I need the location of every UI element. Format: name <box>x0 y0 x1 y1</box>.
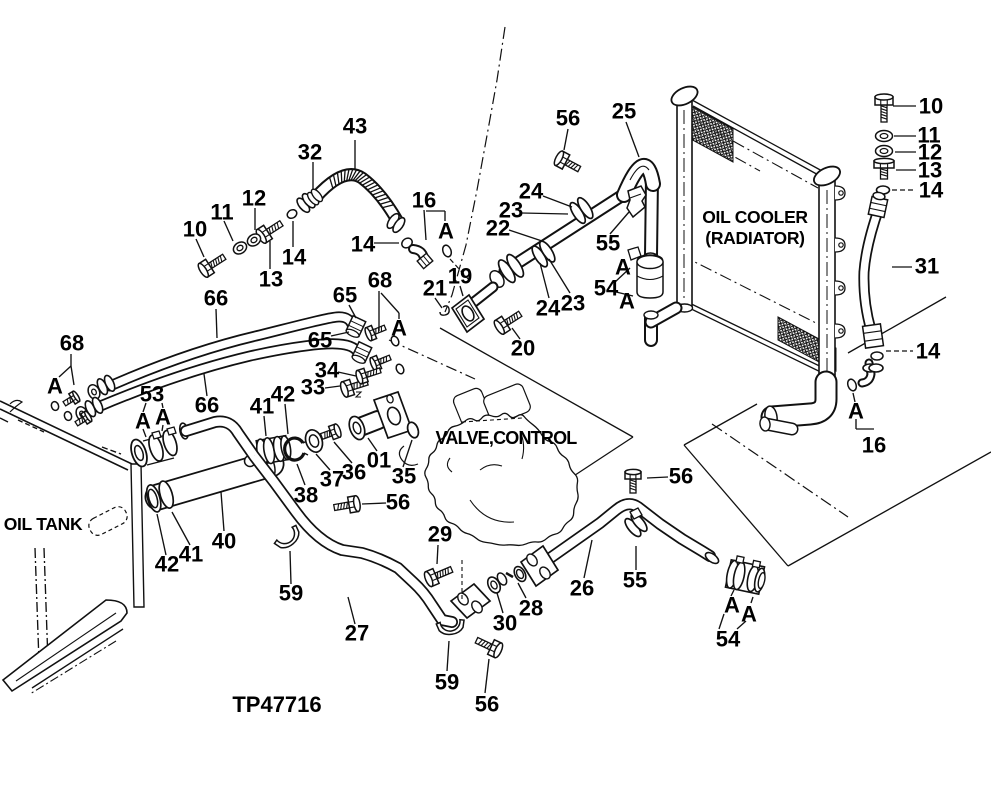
svg-text:OIL TANK: OIL TANK <box>4 514 83 534</box>
svg-text:OIL COOLER: OIL COOLER <box>702 207 808 227</box>
svg-text:28: 28 <box>519 596 543 621</box>
svg-text:14: 14 <box>919 178 944 203</box>
svg-text:11: 11 <box>210 200 233 225</box>
svg-text:(RADIATOR): (RADIATOR) <box>705 228 804 248</box>
svg-text:38: 38 <box>294 483 318 508</box>
svg-text:66: 66 <box>195 393 219 418</box>
svg-text:68: 68 <box>60 331 84 356</box>
svg-text:10: 10 <box>183 217 207 242</box>
svg-text:26: 26 <box>570 576 594 601</box>
svg-text:41: 41 <box>179 542 203 567</box>
svg-text:35: 35 <box>392 464 416 489</box>
svg-text:A: A <box>155 405 171 430</box>
svg-text:A: A <box>619 289 635 314</box>
svg-text:40: 40 <box>212 529 236 554</box>
svg-text:21: 21 <box>423 276 447 301</box>
svg-text:56: 56 <box>669 464 693 489</box>
svg-text:43: 43 <box>343 114 367 139</box>
svg-text:23: 23 <box>561 291 585 316</box>
svg-text:A: A <box>47 374 63 399</box>
svg-text:27: 27 <box>345 621 369 646</box>
svg-text:A: A <box>391 316 407 341</box>
svg-text:42: 42 <box>271 382 295 407</box>
svg-text:56: 56 <box>475 692 499 717</box>
svg-text:12: 12 <box>242 186 266 211</box>
svg-text:59: 59 <box>279 581 303 606</box>
svg-text:33: 33 <box>301 375 325 400</box>
svg-text:30: 30 <box>493 611 517 636</box>
svg-text:A: A <box>615 255 631 280</box>
svg-text:19: 19 <box>448 264 472 289</box>
svg-text:A: A <box>438 219 454 244</box>
svg-text:A: A <box>741 602 757 627</box>
svg-text:29: 29 <box>428 522 452 547</box>
svg-text:16: 16 <box>862 433 886 458</box>
svg-text:16: 16 <box>412 188 436 213</box>
svg-text:54: 54 <box>716 627 741 652</box>
svg-text:22: 22 <box>486 216 510 241</box>
svg-text:65: 65 <box>308 328 332 353</box>
svg-text:TP47716: TP47716 <box>232 692 321 717</box>
svg-text:36: 36 <box>342 460 366 485</box>
svg-text:55: 55 <box>623 568 647 593</box>
svg-text:32: 32 <box>298 140 322 165</box>
svg-text:53: 53 <box>140 382 164 407</box>
svg-text:59: 59 <box>435 670 459 695</box>
svg-text:42: 42 <box>155 552 179 577</box>
svg-text:56: 56 <box>556 106 580 131</box>
svg-text:66: 66 <box>204 286 228 311</box>
svg-text:A: A <box>135 409 151 434</box>
svg-text:VALVE,CONTROL: VALVE,CONTROL <box>436 428 578 448</box>
svg-text:14: 14 <box>916 339 941 364</box>
svg-text:20: 20 <box>511 336 535 361</box>
svg-text:10: 10 <box>919 94 943 119</box>
svg-text:14: 14 <box>282 245 307 270</box>
svg-text:01: 01 <box>367 448 391 473</box>
svg-text:25: 25 <box>612 99 636 124</box>
svg-text:68: 68 <box>368 268 392 293</box>
svg-text:31: 31 <box>915 254 939 279</box>
svg-text:41: 41 <box>250 394 274 419</box>
svg-text:A: A <box>724 593 740 618</box>
svg-text:14: 14 <box>351 232 376 257</box>
svg-text:55: 55 <box>596 231 620 256</box>
svg-text:56: 56 <box>386 490 410 515</box>
svg-text:24: 24 <box>536 296 561 321</box>
svg-text:65: 65 <box>333 283 357 308</box>
svg-text:13: 13 <box>259 267 283 292</box>
svg-text:37: 37 <box>320 467 344 492</box>
svg-text:A: A <box>848 399 864 424</box>
